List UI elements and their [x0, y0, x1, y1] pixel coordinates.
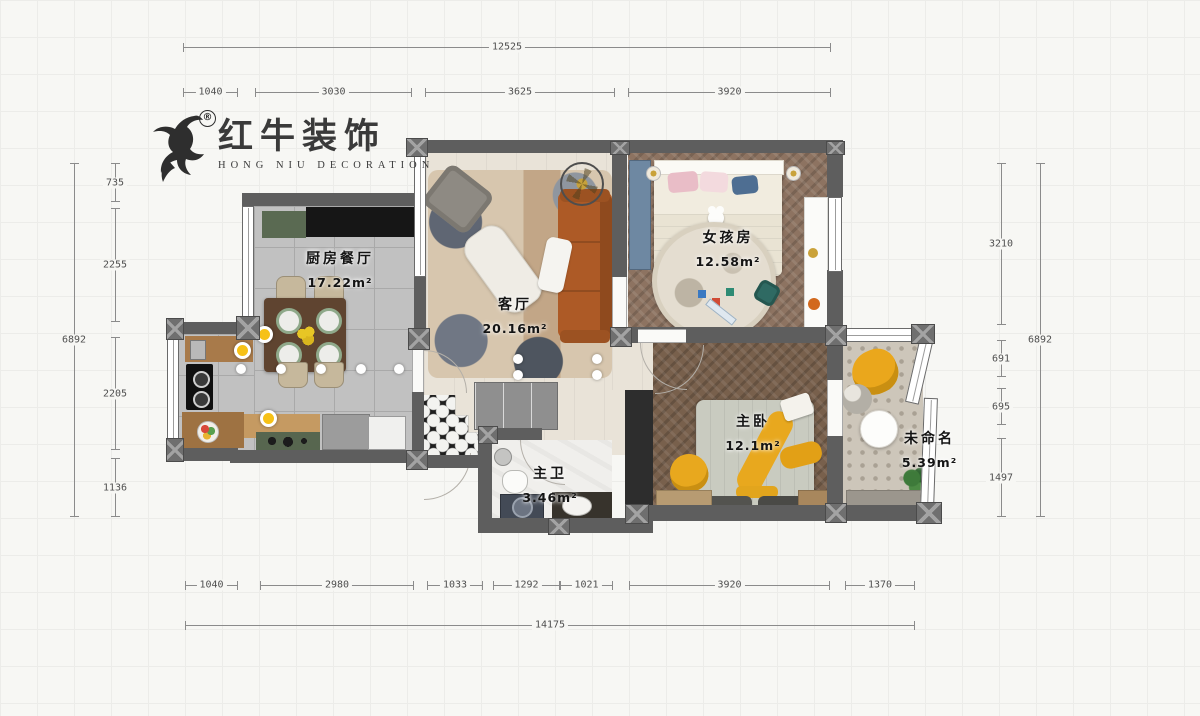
- entry-door-opening: [412, 350, 424, 392]
- dim-left-segment: 735: [115, 163, 116, 202]
- girls-right-window: [828, 197, 842, 272]
- dim-top-segment: 3920: [628, 92, 831, 93]
- kitchen-bottom-wall: [230, 450, 420, 463]
- room-name: 女孩房: [668, 227, 788, 247]
- hall-cabinet: [474, 382, 558, 430]
- room-label-kitchen: 厨房餐厅 17.22m²: [270, 248, 410, 290]
- desk-item: [808, 248, 818, 258]
- balcony-door-opening: [827, 380, 843, 436]
- ceiling-light: [592, 354, 602, 364]
- dim-bottom-overall: 14175: [185, 625, 915, 626]
- dim-value: 735: [103, 177, 127, 188]
- room-name: 未命名: [872, 428, 987, 448]
- dim-right-segment: 691: [1001, 340, 1002, 377]
- dim-bottom-segment: 1040: [185, 585, 238, 586]
- dim-left-segment: 2205: [115, 337, 116, 450]
- balcony-top-window: [843, 328, 915, 342]
- dim-value: 2255: [100, 260, 130, 271]
- pillow-pink-light: [699, 171, 728, 193]
- brand-subtitle: HONG NIU DECORATION: [218, 160, 434, 171]
- burner-1: [193, 371, 210, 388]
- dim-value: 1370: [865, 580, 895, 591]
- dim-value: 1497: [986, 472, 1016, 483]
- kitchen-top-wall: [242, 193, 420, 206]
- kitchen-ext-top-wall: [178, 322, 238, 334]
- master-closet: [625, 390, 653, 518]
- dim-right-segment: 3210: [1001, 163, 1002, 325]
- dim-value: 14175: [532, 620, 568, 631]
- ceiling-light: [592, 370, 602, 380]
- ceiling-light: [316, 364, 326, 374]
- room-area: 12.1m²: [693, 438, 813, 453]
- toy: [726, 288, 734, 296]
- dim-value: 6892: [1025, 335, 1055, 346]
- bull-logo-icon: ®: [148, 112, 212, 184]
- company-logo: ® 红牛装饰 HONG NIU DECORATION: [148, 112, 434, 184]
- corner-post: [826, 141, 845, 155]
- dim-right-overall: 6892: [1040, 163, 1041, 517]
- fruit-plate: [197, 421, 219, 443]
- ceiling-light: [394, 364, 404, 374]
- kitchen-sink: [190, 340, 206, 360]
- dim-bottom-segment: 1370: [845, 585, 915, 586]
- dim-value: 1033: [440, 580, 470, 591]
- floor-plan-page: ® 红牛装饰 HONG NIU DECORATION: [0, 0, 1200, 716]
- ceiling-light: [513, 370, 523, 380]
- room-name: 厨房餐厅: [270, 248, 410, 268]
- upper-cabinet-black: [306, 207, 414, 237]
- bedside-lamp: [786, 166, 801, 181]
- corner-post: [610, 141, 630, 155]
- dim-bottom-segment: 2980: [260, 585, 414, 586]
- ceiling-light: [356, 364, 366, 374]
- room-area: 20.16m²: [455, 321, 575, 336]
- corner-post: [166, 438, 184, 462]
- dim-value: 1040: [196, 580, 226, 591]
- bottom-wall: [640, 505, 920, 521]
- dim-value: 3625: [505, 87, 535, 98]
- corner-post: [408, 328, 430, 350]
- dim-bottom-segment: 1292: [493, 585, 560, 586]
- dim-value: 3030: [318, 87, 348, 98]
- room-name: 主卧: [693, 411, 813, 431]
- counter-green: [256, 432, 320, 450]
- kitchen-ext-left-window: [167, 338, 179, 440]
- dim-top-segment: 1040: [183, 92, 238, 93]
- dim-value: 2205: [100, 388, 130, 399]
- corner-post: [406, 450, 428, 470]
- room-area: 5.39m²: [872, 455, 987, 470]
- room-area: 12.58m²: [668, 254, 788, 269]
- ceiling-light: [236, 364, 246, 374]
- dim-value: 3920: [714, 580, 744, 591]
- corner-post: [825, 503, 847, 523]
- kitchen-living-partition-wall: [414, 275, 426, 330]
- ceiling-fan: [560, 162, 604, 206]
- dim-value: 12525: [489, 42, 525, 53]
- corner-post: [478, 426, 498, 444]
- girls-right-wall-upper: [827, 153, 843, 197]
- dim-left-segment: 1136: [115, 458, 116, 517]
- room-label-master-bath: 主卫 3.46m²: [490, 463, 610, 505]
- room-label-master-bedroom: 主卧 12.1m²: [693, 411, 813, 453]
- dim-left-overall: 6892: [74, 163, 75, 517]
- dim-top-segment: 3625: [425, 92, 615, 93]
- dim-right-segment: 695: [1001, 388, 1002, 425]
- dim-top-segment: 3030: [255, 92, 412, 93]
- desk-item: [808, 298, 820, 310]
- dim-value: 1040: [195, 87, 225, 98]
- room-name: 主卫: [490, 463, 610, 483]
- dim-bottom-segment: 1033: [427, 585, 483, 586]
- dishwasher: [322, 414, 370, 450]
- brand-name: 红牛装饰: [218, 118, 434, 157]
- room-name: 客厅: [455, 294, 575, 314]
- corner-post: [625, 504, 649, 524]
- room-area: 3.46m²: [490, 490, 610, 505]
- girls-right-wall-lower: [827, 270, 843, 327]
- toy: [698, 290, 706, 298]
- pillow-pink: [667, 171, 699, 194]
- bedside-lamp: [646, 166, 661, 181]
- corner-post: [911, 324, 935, 344]
- girls-divider-opening: [612, 277, 627, 327]
- dim-value: 3210: [986, 239, 1016, 250]
- corner-post: [610, 327, 632, 347]
- balcony-ball-chair: [842, 384, 872, 414]
- dim-value: 695: [989, 401, 1013, 412]
- upper-cabinet-green: [262, 211, 306, 238]
- ceiling-light: [513, 354, 523, 364]
- corner-post: [548, 518, 570, 535]
- dim-top-overall: 12525: [183, 47, 831, 48]
- dim-value: 3920: [714, 87, 744, 98]
- living-girls-divider-wall: [612, 153, 627, 277]
- plate: [316, 308, 342, 334]
- dim-value: 1136: [100, 482, 130, 493]
- dim-right-segment: 1497: [1001, 438, 1002, 517]
- room-label-unnamed: 未命名 5.39m²: [872, 428, 987, 470]
- corner-post: [916, 502, 942, 524]
- spot-light-yellow: [234, 342, 251, 359]
- dim-value: 1021: [571, 580, 601, 591]
- corner-post: [236, 316, 260, 340]
- corner-post: [166, 318, 184, 340]
- corner-post: [825, 325, 847, 346]
- fridge: [368, 416, 406, 450]
- dim-left-segment: 2255: [115, 208, 116, 322]
- spot-light-yellow: [260, 410, 277, 427]
- ceiling-light: [276, 364, 286, 374]
- dim-value: 2980: [322, 580, 352, 591]
- table-flowers: [295, 325, 319, 347]
- sofa-backrest: [600, 196, 612, 334]
- burner-2: [193, 391, 210, 408]
- kitchen-left-window: [242, 206, 254, 320]
- dim-bottom-segment: 1021: [560, 585, 613, 586]
- room-label-girls-room: 女孩房 12.58m²: [668, 227, 788, 269]
- dim-bottom-segment: 3920: [629, 585, 830, 586]
- room-area: 17.22m²: [270, 275, 410, 290]
- registered-mark: ®: [199, 110, 216, 127]
- room-label-living: 客厅 20.16m²: [455, 294, 575, 336]
- dim-value: 691: [989, 353, 1013, 364]
- dim-value: 6892: [59, 335, 89, 346]
- dim-value: 1292: [511, 580, 541, 591]
- pillow-blue: [731, 175, 759, 196]
- girls-door-opening: [638, 329, 686, 343]
